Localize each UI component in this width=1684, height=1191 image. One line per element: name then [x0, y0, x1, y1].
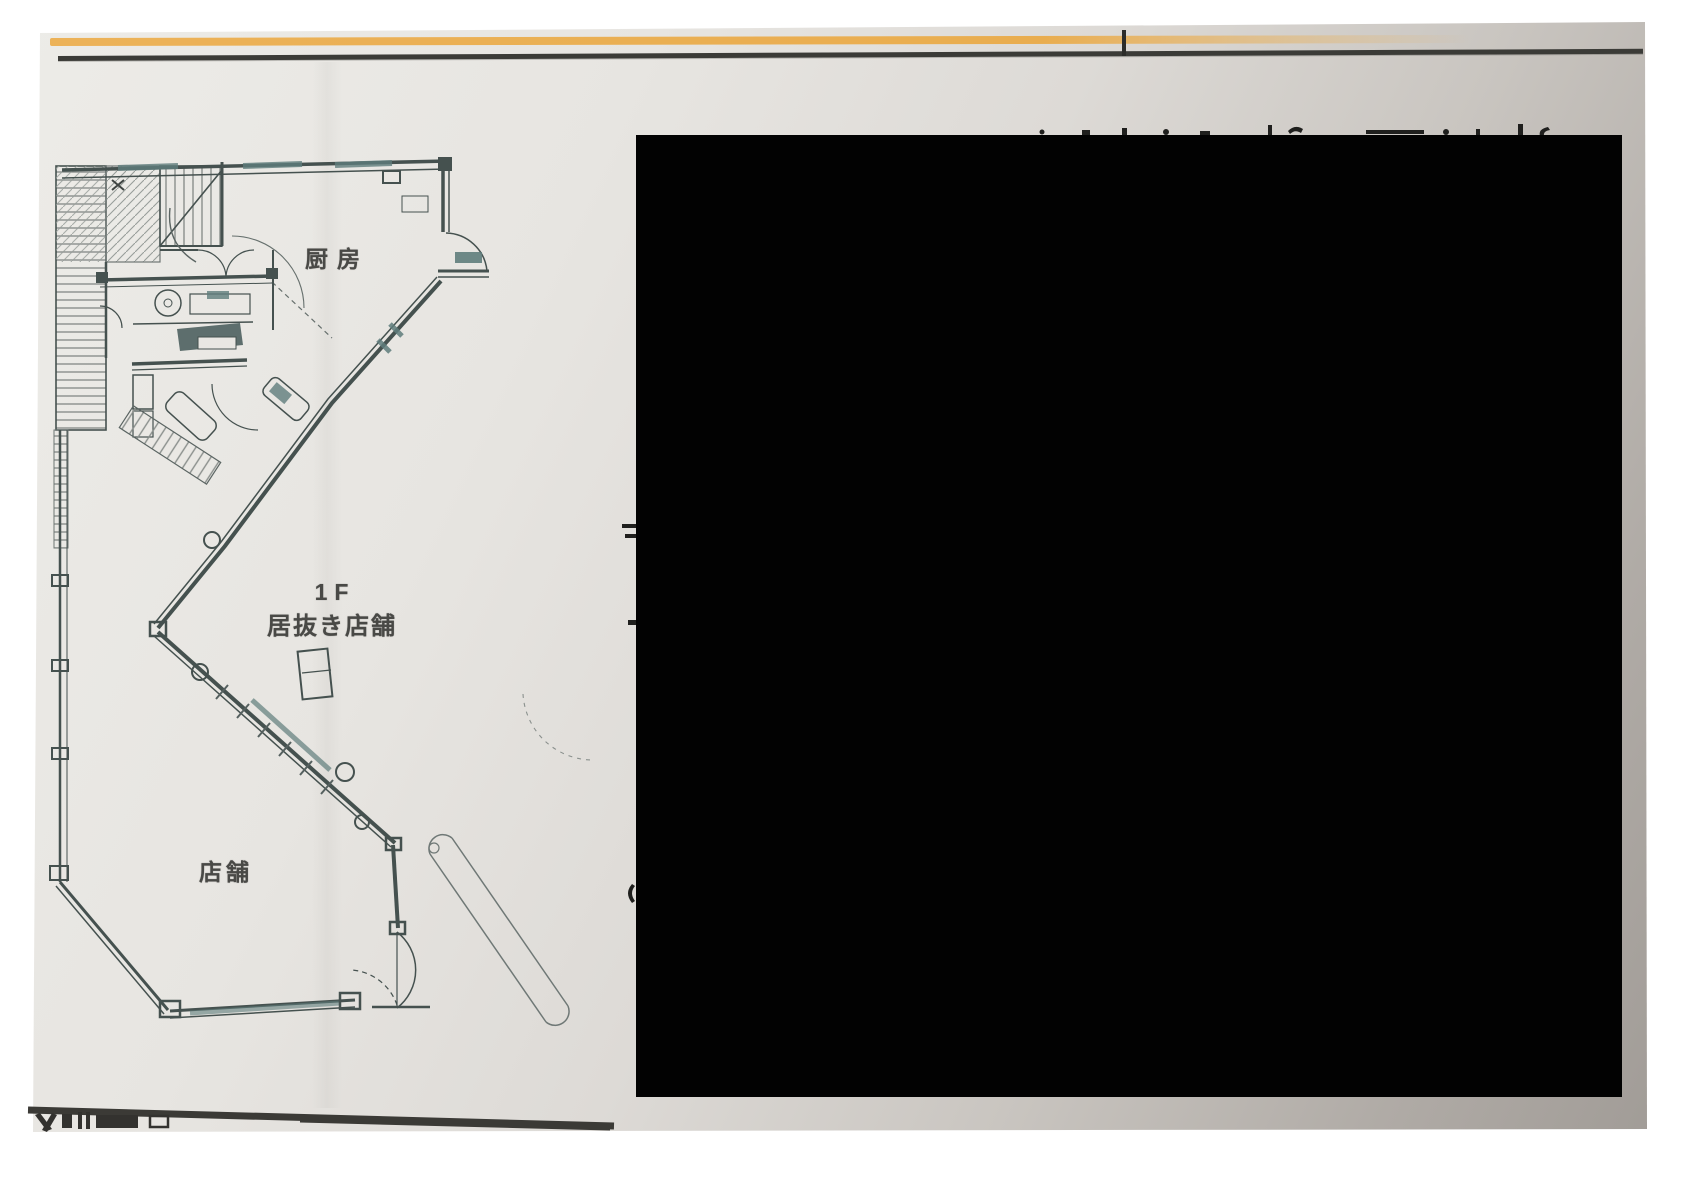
entrance-details — [429, 694, 593, 1025]
label-leasehold-store: 居抜き店舗 — [230, 606, 434, 641]
top-edge-text-fragments — [1040, 30, 1551, 136]
label-store: 店舗 — [176, 853, 276, 887]
staircase — [160, 162, 222, 262]
redaction-box — [636, 135, 1622, 1097]
label-floor-level: 1F — [285, 579, 385, 606]
page: { "page": { "background": "#ffffff" }, "… — [0, 0, 1684, 1191]
bottom-edge-band — [28, 1110, 614, 1132]
label-kitchen: 厨房 — [287, 240, 387, 274]
left-edge-text-fragments — [622, 524, 636, 903]
